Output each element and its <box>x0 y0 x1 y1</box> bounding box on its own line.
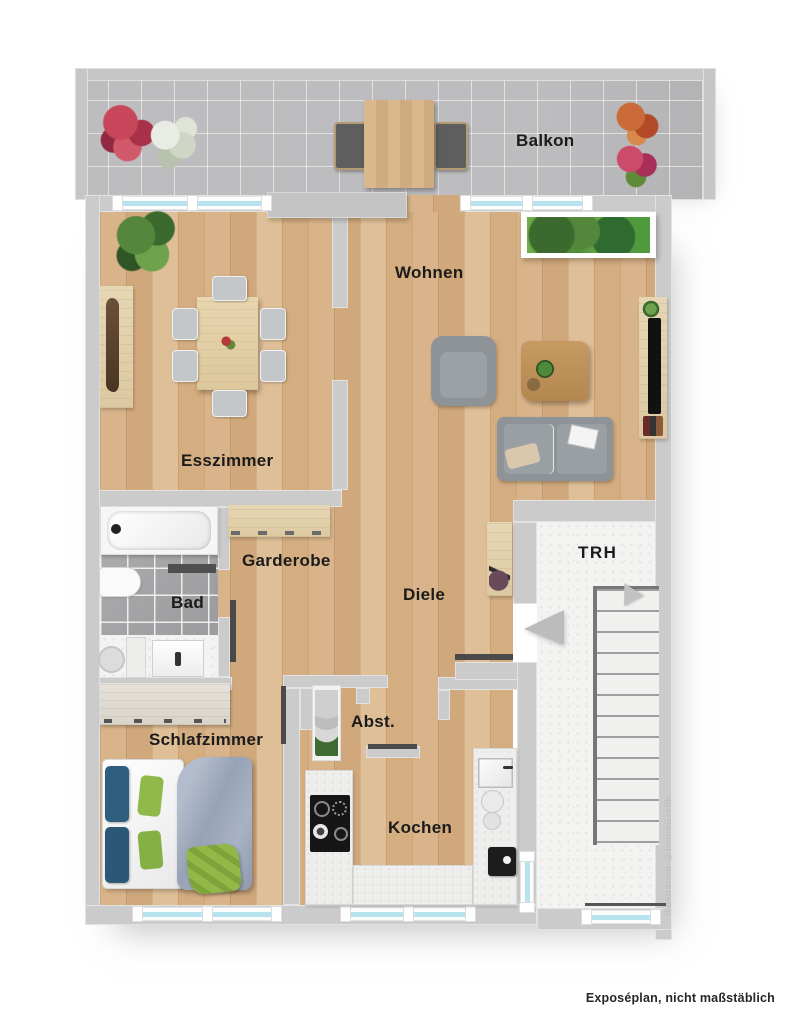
schlafzimmer-label: Schlafzimmer <box>149 730 263 750</box>
wall-kochen-stub <box>438 690 450 720</box>
trh-label: TRH <box>578 543 617 563</box>
console-accessories <box>489 554 510 592</box>
toilet <box>100 568 140 596</box>
window-trh-side <box>521 855 533 909</box>
kitchen-appliance-dial <box>503 856 511 864</box>
dining-chair-right-1 <box>260 308 286 340</box>
bed-pillow-green-2 <box>137 830 163 870</box>
dining-chair-bottom <box>212 390 247 417</box>
bathtub-faucet <box>111 524 121 534</box>
balkon-label: Balkon <box>516 131 574 151</box>
balcony-chair-left <box>334 122 368 170</box>
window-kochen <box>344 908 472 920</box>
bad-sink-faucet <box>175 652 181 666</box>
bad-shelf <box>168 564 216 573</box>
balcony-railing-top <box>75 68 716 81</box>
bad-cabinet <box>126 637 146 678</box>
schlafzimmer-wardrobe-handles <box>104 719 226 723</box>
tv-board-plant <box>638 296 664 322</box>
balcony-table <box>364 100 434 188</box>
diele-label: Diele <box>403 585 445 605</box>
tv-screen <box>648 318 661 414</box>
bed-throw-green <box>186 842 243 895</box>
kitchen-appliance <box>488 847 516 876</box>
kitchen-counter-bottom <box>353 865 473 905</box>
flowers-pink <box>606 132 666 192</box>
door-leaf-abst <box>281 686 286 744</box>
bed-pillow-blue-2 <box>105 827 129 883</box>
wohnen-label: Wohnen <box>395 263 464 283</box>
wall-bad-right-lower <box>218 617 230 677</box>
kochen-label: Kochen <box>388 818 452 838</box>
floor-plan: Balkon Esszimmer <box>0 0 792 1024</box>
dining-chair-left-1 <box>172 308 198 340</box>
balcony-railing-right <box>703 68 716 200</box>
cooktop-burner-1 <box>314 801 330 817</box>
wall-abst-stub-right <box>356 688 370 704</box>
kitchen-sink-faucet <box>503 766 513 769</box>
balcony-chair-right <box>434 122 468 170</box>
balcony-door-opening <box>407 195 465 212</box>
wall-trh-left-upper <box>513 522 537 604</box>
bathtub-basin <box>107 511 211 550</box>
bad-label: Bad <box>171 593 204 613</box>
kitchen-plate-1 <box>481 790 504 813</box>
door-leaf-abst-bottom <box>368 744 417 749</box>
wall-outer-left <box>85 195 100 925</box>
stair-landing-line <box>585 903 666 906</box>
door-leaf-schlafzimmer <box>230 600 236 662</box>
window-wohnen <box>464 197 589 209</box>
window-trh-bottom <box>585 911 657 923</box>
plan-caption: Exposéplan, nicht maßstäblich <box>565 991 775 1005</box>
abst-shelf-dishes <box>315 690 338 756</box>
bed-pillow-blue-1 <box>105 766 129 822</box>
balcony-railing-left <box>75 68 88 200</box>
abst-label: Abst. <box>351 712 395 732</box>
door-leaf-entrance <box>455 654 513 660</box>
wall-trh-top <box>513 500 672 522</box>
garderobe-wardrobe-handles <box>231 531 327 535</box>
wall-esszimmer-divider-lower <box>332 380 348 490</box>
plant-wall-greens <box>527 217 650 253</box>
table-flowers <box>219 334 237 352</box>
dining-chair-right-2 <box>260 350 286 382</box>
tv-board-books <box>643 416 663 436</box>
bed-pillow-green-1 <box>137 775 164 817</box>
wall-abst-stub-left <box>300 688 314 730</box>
washing-machine <box>98 646 125 673</box>
coffee-table-tray <box>527 378 540 391</box>
flowers-white <box>138 108 206 176</box>
armchair-cushion <box>440 352 487 398</box>
esszimmer-plant <box>108 208 188 276</box>
kitchen-plate-2 <box>483 812 501 830</box>
wall-esszimmer-divider-upper <box>332 212 348 308</box>
garderobe-label: Garderobe <box>242 551 331 571</box>
cooktop-pot <box>313 824 328 839</box>
cooktop-burner-2 <box>332 801 347 816</box>
dining-chair-top <box>212 276 247 301</box>
stair-direction-arrow <box>524 610 564 645</box>
dining-chair-left-2 <box>172 350 198 382</box>
illustrator-watermark: Illustration ©immoGrafik <box>663 786 674 916</box>
sideboard-deco <box>106 298 119 392</box>
esszimmer-label: Esszimmer <box>181 451 273 471</box>
balcony-door-slab <box>267 192 407 218</box>
kitchen-sink <box>478 758 513 788</box>
window-schlafzimmer <box>136 908 278 920</box>
cooktop-burner-3 <box>334 827 348 841</box>
staircase <box>593 586 659 845</box>
